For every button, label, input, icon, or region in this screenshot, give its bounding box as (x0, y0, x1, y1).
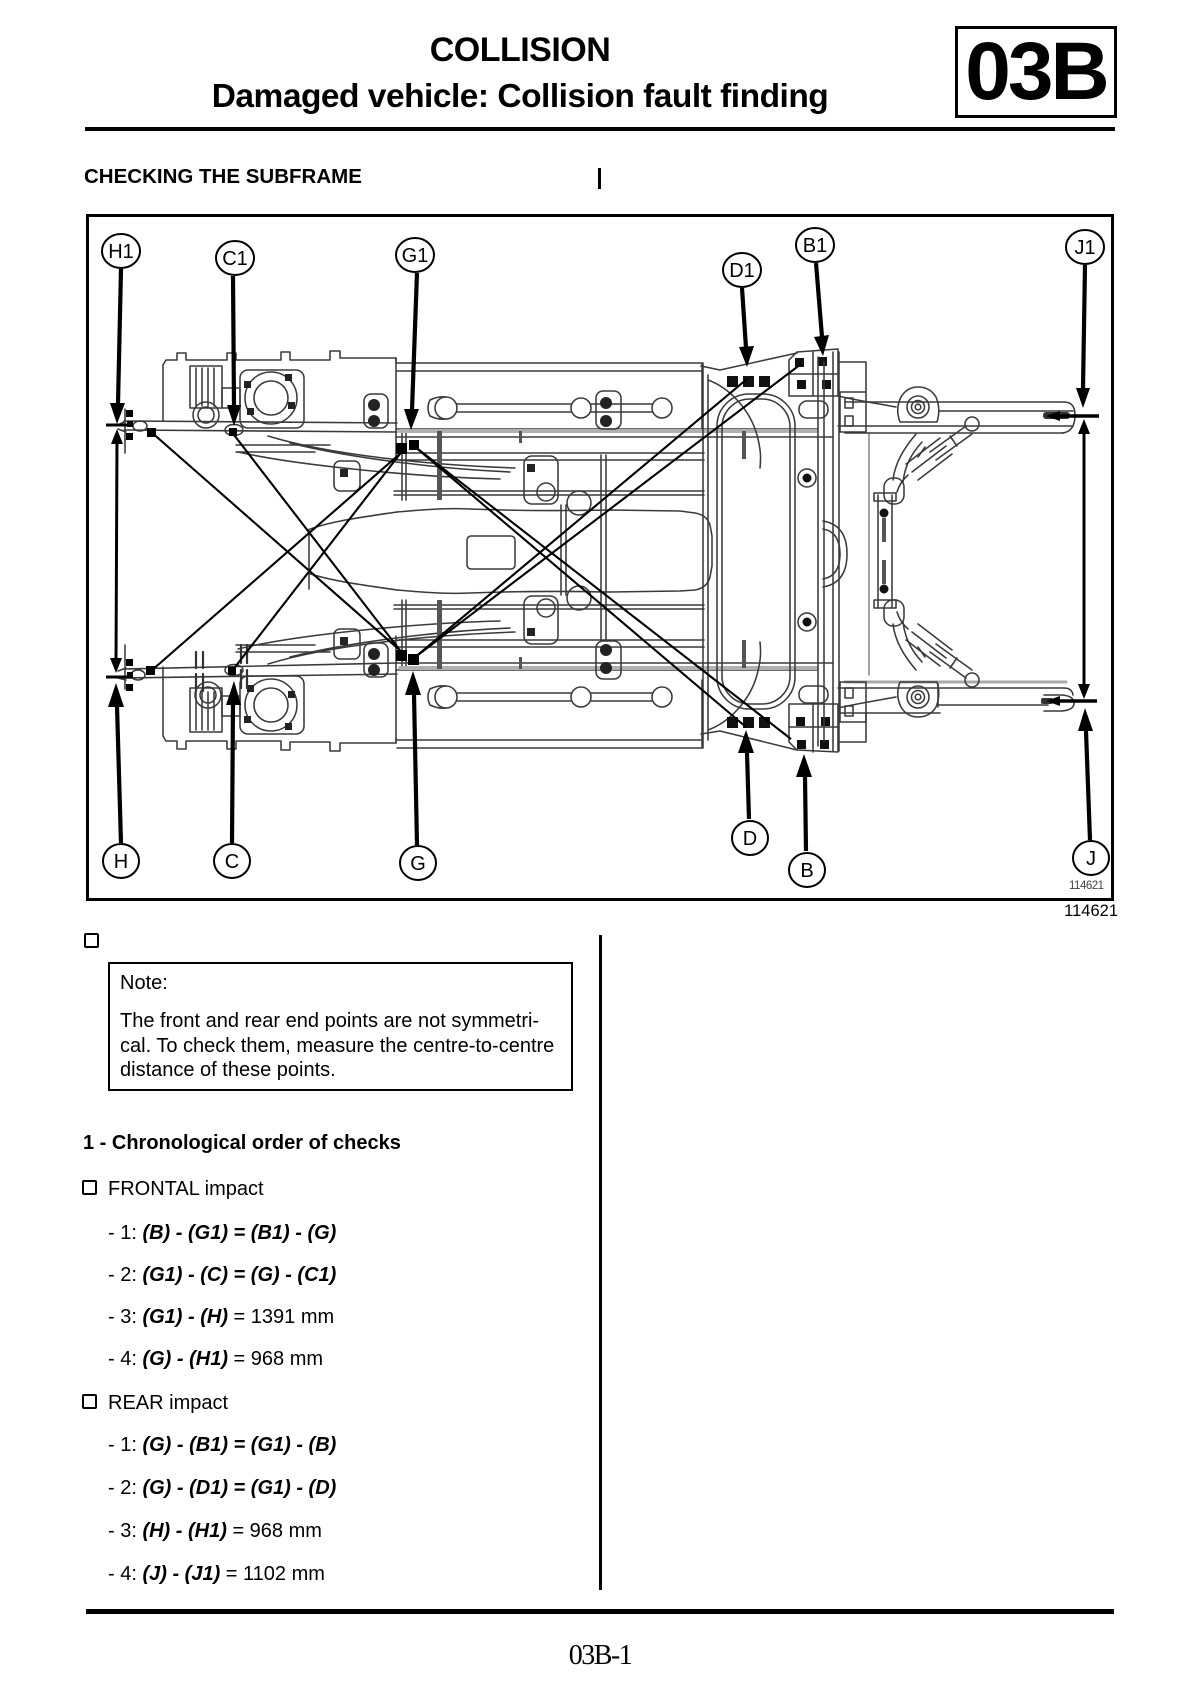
svg-text:J1: J1 (1074, 237, 1095, 259)
svg-text:D: D (743, 828, 757, 850)
svg-text:G: G (410, 853, 426, 875)
svg-text:H: H (114, 851, 128, 873)
svg-text:H1: H1 (108, 241, 134, 263)
svg-text:B1: B1 (803, 235, 827, 257)
svg-text:B: B (800, 860, 813, 882)
svg-text:G1: G1 (402, 245, 429, 267)
svg-text:D1: D1 (729, 260, 755, 282)
svg-text:J: J (1086, 848, 1096, 870)
svg-text:C: C (225, 851, 239, 873)
svg-text:C1: C1 (222, 248, 248, 270)
